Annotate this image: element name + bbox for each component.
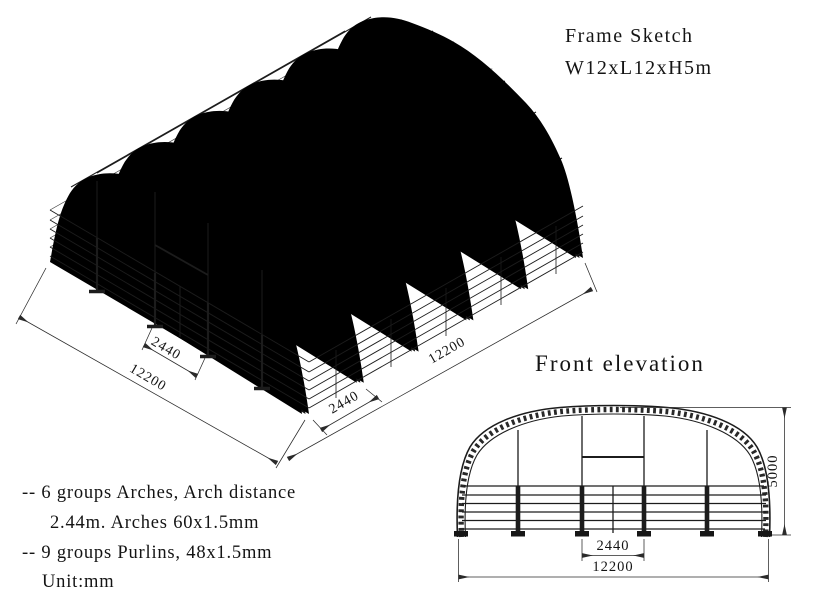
- iso-dim-arch-bay-right: 2440: [327, 389, 362, 418]
- note-line-2: 2.44m. Arches 60x1.5mm: [50, 513, 259, 533]
- front-elevation-view: 2440 12200 5000 Front elevation: [454, 351, 791, 582]
- notes-block: -- 6 groups Arches, Arch distance 2.44m.…: [22, 483, 296, 592]
- note-line-3: -- 9 groups Purlins, 48x1.5mm: [22, 543, 272, 563]
- iso-dim-total-right: 12200: [426, 335, 468, 368]
- note-line-1: -- 6 groups Arches, Arch distance: [22, 483, 296, 503]
- drawing-sheet: 2440 12200 2440 12200: [0, 0, 832, 612]
- frame-sketch-drawing: 2440 12200 2440 12200: [0, 0, 832, 612]
- iso-dim-arch-bay-left: 2440: [148, 334, 183, 363]
- isometric-view: 2440 12200 2440 12200: [16, 17, 597, 468]
- note-line-4: Unit:mm: [42, 572, 114, 592]
- elevation-dim-center-bay: 2440: [597, 538, 630, 554]
- sheet-title-line2: W12xL12xH5m: [565, 57, 713, 79]
- sheet-title-line1: Frame Sketch: [565, 25, 694, 47]
- elevation-dim-total-width: 12200: [592, 559, 633, 575]
- sheet-title: Frame Sketch W12xL12xH5m: [565, 25, 713, 79]
- front-elevation-title: Front elevation: [535, 351, 705, 376]
- elevation-dim-height: 5000: [765, 455, 781, 488]
- truss-arches: [44, 17, 591, 415]
- elevation-wall: [454, 416, 772, 537]
